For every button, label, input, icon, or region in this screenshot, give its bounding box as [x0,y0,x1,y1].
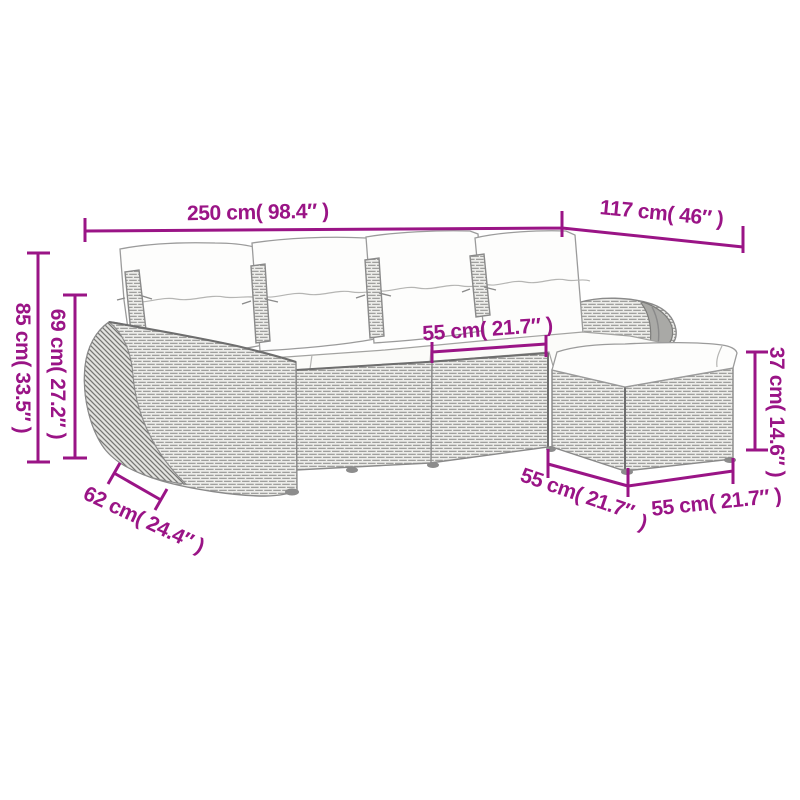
foot-base-2 [427,462,439,468]
dim-arm-height: 69 cm( 27.2″ ) [46,295,87,458]
dim-ottoman-height-label: 37 cm( 14.6″ ) [765,347,788,478]
sofa-illustration [84,231,737,496]
dim-ottoman-front-right-label: 55 cm( 21.7″ ) [650,484,782,521]
dim-right-section-label: 117 cm( 46″ ) [599,196,725,231]
dim-ottoman-height-line [746,352,768,450]
dim-arm-height-label: 69 cm( 27.2″ ) [46,309,69,440]
ottoman-left-face [552,370,625,471]
dim-arm-depth-label: 62 cm( 24.4″ ) [80,482,208,558]
foot-base-1 [346,467,358,473]
dim-back-height: 85 cm( 33.5″ ) [11,253,50,462]
dim-ottoman-front-left-label-line2: ) [636,511,650,535]
foot-arm [285,489,299,496]
sofa-base [296,353,548,470]
product-dimension-diagram: 250 cm( 98.4″ ) 117 cm( 46″ ) 85 cm( 33.… [0,0,800,800]
sofa-base-divider [431,361,432,463]
diagram-svg: 250 cm( 98.4″ ) 117 cm( 46″ ) 85 cm( 33.… [0,0,800,800]
sofa-base-front-panel [296,353,548,470]
dim-total-width-label: 250 cm( 98.4″ ) [187,200,329,225]
ottoman [552,343,737,471]
dim-right-section-width: 117 cm( 46″ ) [562,196,743,253]
dim-ottoman-height: 37 cm( 14.6″ ) [746,347,788,478]
dim-back-height-label: 85 cm( 33.5″ ) [11,303,34,434]
